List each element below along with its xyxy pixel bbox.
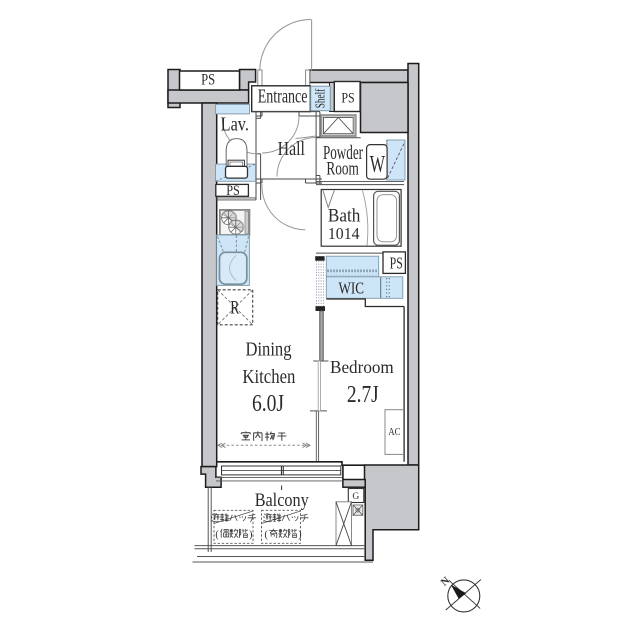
svg-text:1014: 1014	[328, 224, 360, 243]
svg-text:Balcony: Balcony	[255, 490, 309, 511]
svg-text:PS: PS	[341, 90, 354, 106]
svg-text:Shelf: Shelf	[313, 89, 328, 109]
svg-text:Room: Room	[326, 159, 359, 180]
svg-text:WIC: WIC	[339, 278, 365, 297]
svg-text:): )	[298, 529, 301, 540]
svg-text:Dining: Dining	[246, 339, 292, 361]
svg-text:G: G	[352, 492, 359, 502]
svg-text:PS: PS	[201, 71, 215, 88]
svg-text:Bedroom: Bedroom	[330, 357, 394, 377]
svg-text:2.7J: 2.7J	[347, 381, 379, 408]
svg-text:AC: AC	[388, 427, 400, 438]
svg-text:Hall: Hall	[278, 138, 306, 160]
svg-text:PS: PS	[390, 253, 403, 272]
svg-text:): )	[249, 529, 252, 540]
svg-text:PS: PS	[226, 183, 240, 199]
svg-text:Kitchen: Kitchen	[242, 366, 295, 388]
svg-text:Entrance: Entrance	[258, 86, 308, 108]
svg-text:6.0J: 6.0J	[252, 390, 284, 417]
svg-text:W: W	[370, 152, 385, 178]
svg-text:R: R	[230, 297, 239, 318]
svg-text:Lav.: Lav.	[221, 114, 249, 136]
